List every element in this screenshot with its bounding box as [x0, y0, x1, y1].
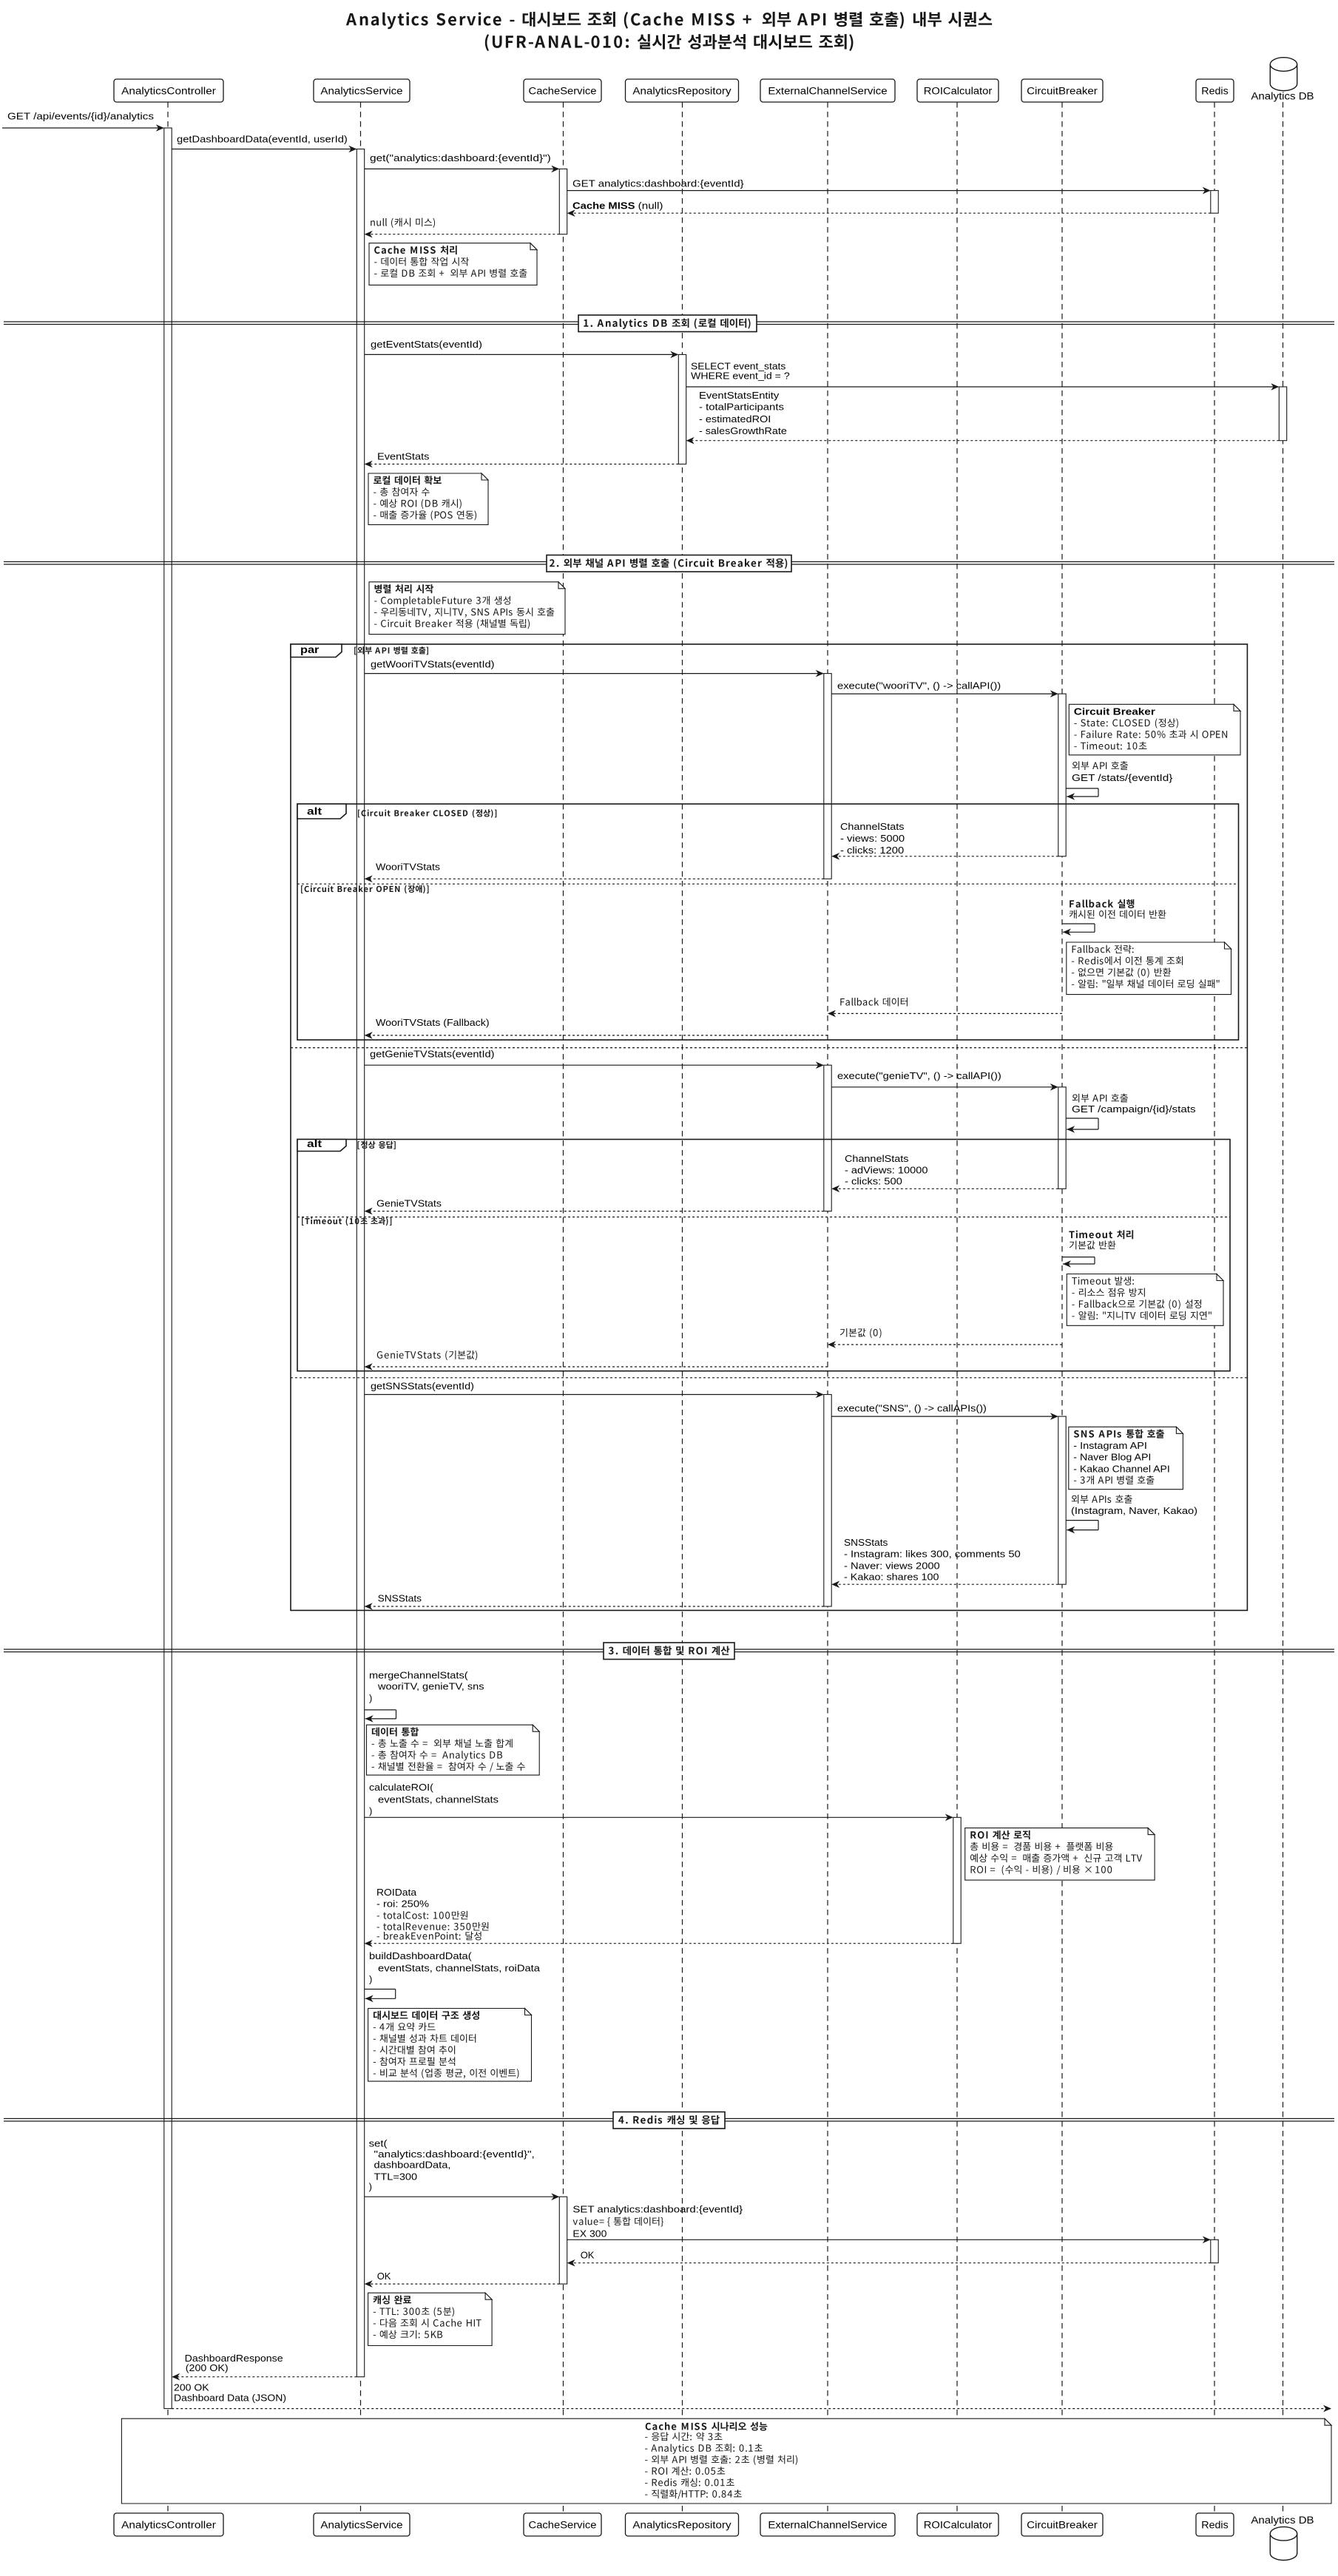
svg-text:AnalyticsRepository: AnalyticsRepository: [632, 2520, 731, 2531]
svg-text:- Instagram API: - Instagram API: [1073, 1440, 1147, 1451]
svg-text:(200 OK): (200 OK): [186, 2362, 229, 2373]
svg-text:getEventStats(eventId): getEventStats(eventId): [371, 339, 482, 350]
svg-text:WooriTVStats (Fallback): WooriTVStats (Fallback): [376, 1017, 490, 1028]
svg-text:ExternalChannelService: ExternalChannelService: [768, 2520, 887, 2531]
svg-text:"analytics:dashboard:{eventId}: "analytics:dashboard:{eventId}",: [374, 2149, 535, 2160]
svg-text:eventStats, channelStats: eventStats, channelStats: [378, 1794, 499, 1805]
svg-text:alt: alt: [307, 1138, 322, 1149]
svg-text:EventStats: EventStats: [377, 451, 430, 462]
svg-text:WooriTVStats: WooriTVStats: [376, 862, 441, 873]
svg-text:AnalyticsRepository: AnalyticsRepository: [632, 86, 731, 97]
svg-text:getWooriTVStats(eventId): getWooriTVStats(eventId): [371, 659, 495, 670]
svg-text:- salesGrowthRate: - salesGrowthRate: [699, 425, 787, 436]
svg-text:GET analytics:dashboard:{event: GET analytics:dashboard:{eventId}: [572, 178, 744, 189]
svg-text:ROIData: ROIData: [376, 1887, 417, 1898]
svg-text:TTL=300: TTL=300: [374, 2171, 418, 2183]
svg-text:): ): [369, 2181, 372, 2192]
svg-text:- Kakao: shares 100: - Kakao: shares 100: [844, 1572, 939, 1583]
svg-text:CacheService: CacheService: [529, 86, 597, 97]
svg-text:AnalyticsService: AnalyticsService: [320, 2520, 402, 2531]
svg-text:par: par: [300, 644, 320, 655]
svg-text:- clicks: 1200: - clicks: 1200: [840, 845, 904, 856]
svg-text:get("analytics:dashboard:{even: get("analytics:dashboard:{eventId}"): [370, 152, 551, 163]
svg-text:buildDashboardData(: buildDashboardData(: [369, 1950, 472, 1961]
svg-text:CacheService: CacheService: [529, 2520, 597, 2531]
svg-text:EX 300: EX 300: [572, 2228, 607, 2239]
svg-text:mergeChannelStats(: mergeChannelStats(: [369, 1670, 468, 1681]
svg-text:Analytics DB: Analytics DB: [1251, 2515, 1314, 2526]
svg-text:getGenieTVStats(eventId): getGenieTVStats(eventId): [370, 1048, 495, 1059]
svg-text:getSNSStats(eventId): getSNSStats(eventId): [371, 1381, 474, 1392]
svg-text:execute("genieTV", () -> callA: execute("genieTV", () -> callAPI()): [837, 1070, 1001, 1081]
svg-text:GenieTVStats: GenieTVStats: [376, 1197, 442, 1208]
svg-text:SNSStats: SNSStats: [378, 1593, 422, 1604]
svg-text:(Instagram, Naver, Kakao): (Instagram, Naver, Kakao): [1071, 1505, 1197, 1516]
svg-text:- views: 5000: - views: 5000: [840, 833, 905, 844]
svg-text:- roi: 250%: - roi: 250%: [376, 1899, 430, 1910]
svg-text:wooriTV, genieTV, sns: wooriTV, genieTV, sns: [377, 1681, 484, 1692]
svg-text:ExternalChannelService: ExternalChannelService: [768, 86, 887, 97]
svg-text:200 OK: 200 OK: [174, 2382, 209, 2393]
svg-text:eventStats, channelStats, roiD: eventStats, channelStats, roiData: [378, 1962, 541, 1973]
svg-text:SNSStats: SNSStats: [844, 1537, 888, 1548]
svg-text:Redis: Redis: [1201, 86, 1229, 97]
svg-text:- Kakao Channel API: - Kakao Channel API: [1073, 1463, 1170, 1474]
svg-text:): ): [369, 1973, 372, 1984]
svg-text:AnalyticsController: AnalyticsController: [121, 2520, 216, 2531]
svg-text:execute("SNS", () -> callAPIs(: execute("SNS", () -> callAPIs()): [837, 1402, 987, 1413]
svg-text:GET /stats/{eventId}: GET /stats/{eventId}: [1072, 772, 1173, 783]
svg-text:- Naver Blog API: - Naver Blog API: [1073, 1452, 1151, 1463]
svg-text:ChannelStats: ChannelStats: [845, 1153, 909, 1164]
svg-text:WHERE event_id = ?: WHERE event_id = ?: [691, 371, 790, 382]
svg-text:Redis: Redis: [1201, 2520, 1229, 2531]
svg-text:- Naver: views 2000: - Naver: views 2000: [844, 1560, 940, 1571]
svg-text:CircuitBreaker: CircuitBreaker: [1027, 2520, 1098, 2531]
svg-text:dashboardData,: dashboardData,: [374, 2160, 451, 2171]
svg-text:GET /campaign/{id}/stats: GET /campaign/{id}/stats: [1072, 1103, 1196, 1115]
svg-text:- clicks: 500: - clicks: 500: [845, 1176, 902, 1187]
svg-text:CircuitBreaker: CircuitBreaker: [1027, 86, 1098, 97]
svg-text:ROICalculator: ROICalculator: [924, 86, 993, 97]
svg-text:): ): [369, 1693, 372, 1704]
svg-text:GET /api/events/{id}/analytics: GET /api/events/{id}/analytics: [7, 111, 154, 122]
svg-text:calculateROI(: calculateROI(: [369, 1782, 434, 1793]
svg-text:OK: OK: [377, 2271, 391, 2282]
svg-text:ROICalculator: ROICalculator: [924, 2520, 993, 2531]
svg-text:set(: set(: [369, 2138, 388, 2149]
svg-text:alt: alt: [307, 806, 322, 817]
svg-text:getDashboardData(eventId, user: getDashboardData(eventId, userId): [177, 134, 348, 145]
svg-text:OK: OK: [581, 2250, 595, 2261]
svg-text:- totalParticipants: - totalParticipants: [699, 402, 784, 413]
svg-text:- Instagram: likes 300, commen: - Instagram: likes 300, comments 50: [844, 1548, 1021, 1559]
svg-text:AnalyticsController: AnalyticsController: [121, 86, 216, 97]
svg-text:(null): (null): [638, 200, 663, 211]
svg-text:EventStatsEntity: EventStatsEntity: [699, 390, 780, 401]
svg-text:- adViews: 10000: - adViews: 10000: [845, 1164, 928, 1175]
svg-text:SET analytics:dashboard:{event: SET analytics:dashboard:{eventId}: [572, 2203, 743, 2214]
svg-text:Dashboard Data (JSON): Dashboard Data (JSON): [174, 2393, 286, 2404]
svg-text:ChannelStats: ChannelStats: [840, 821, 905, 832]
svg-text:Analytics DB: Analytics DB: [1251, 91, 1314, 102]
svg-text:AnalyticsService: AnalyticsService: [320, 86, 402, 97]
svg-text:): ): [369, 1805, 372, 1816]
svg-text:Circuit Breaker: Circuit Breaker: [1074, 706, 1155, 717]
svg-text:- estimatedROI: - estimatedROI: [699, 413, 771, 425]
svg-text:Cache MISS: Cache MISS: [572, 200, 635, 211]
svg-text:execute("wooriTV", () -> callA: execute("wooriTV", () -> callAPI()): [837, 680, 1001, 691]
